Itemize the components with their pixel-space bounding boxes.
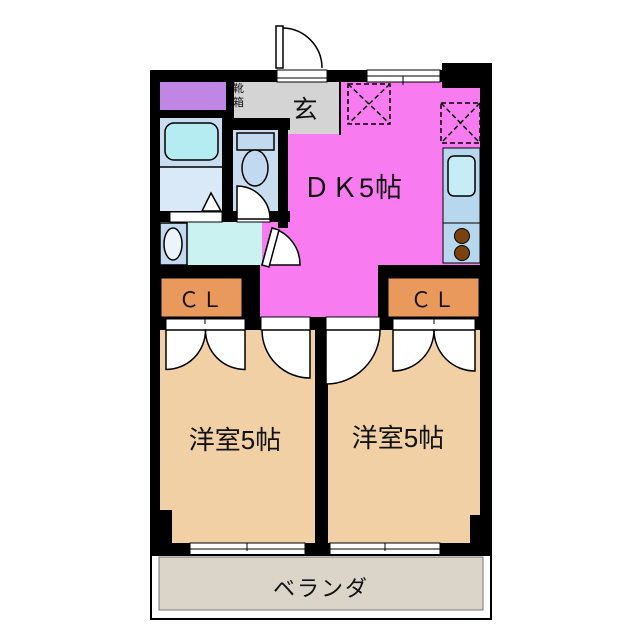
entrance-label: 玄: [288, 90, 322, 126]
room-left-door-sill: [261, 317, 310, 330]
wall-under-storage: [150, 110, 233, 118]
western-room-left-label: 洋室5帖: [171, 420, 299, 457]
bathtub: [165, 123, 218, 160]
stove-burner-1: [455, 229, 470, 244]
toilet-tank: [237, 133, 274, 150]
floor-plan: ＤＫ5帖 洋室5帖 洋室5帖 ＣＬ ＣＬ 玄 靴箱 ベランダ: [0, 0, 640, 640]
toilet-bowl: [242, 150, 268, 186]
entrance-door-arc: [283, 28, 322, 68]
western-room-right-label: 洋室5帖: [334, 418, 462, 455]
wall-kitchen-bottom: [378, 265, 492, 277]
closet-right-label: ＣＬ: [387, 284, 480, 314]
room-right-door-sill: [326, 317, 380, 330]
washbasin-oval: [164, 228, 182, 260]
pillar-bottom-left: [150, 510, 172, 555]
bath-washroom-opening: [170, 212, 222, 222]
storage-box: [160, 82, 226, 110]
stove-burner-2: [455, 246, 470, 261]
dk-room-label: ＤＫ5帖: [288, 166, 418, 205]
closet-left-label: ＣＬ: [160, 284, 243, 314]
veranda-label: ベランダ: [250, 571, 392, 603]
entrance-door-leaf: [276, 26, 283, 68]
pillar-bottom-right: [470, 515, 492, 555]
wall-entrance-dk-line: [339, 82, 341, 135]
wall-right: [480, 70, 492, 555]
pillar-top-right: [442, 63, 492, 88]
wall-bath-toilet: [222, 118, 233, 222]
dk-corridor: [260, 265, 378, 317]
kitchen-sink: [448, 156, 475, 196]
entrance-door-sill: [277, 70, 327, 82]
shoe-box-label: 靴箱: [233, 83, 247, 111]
